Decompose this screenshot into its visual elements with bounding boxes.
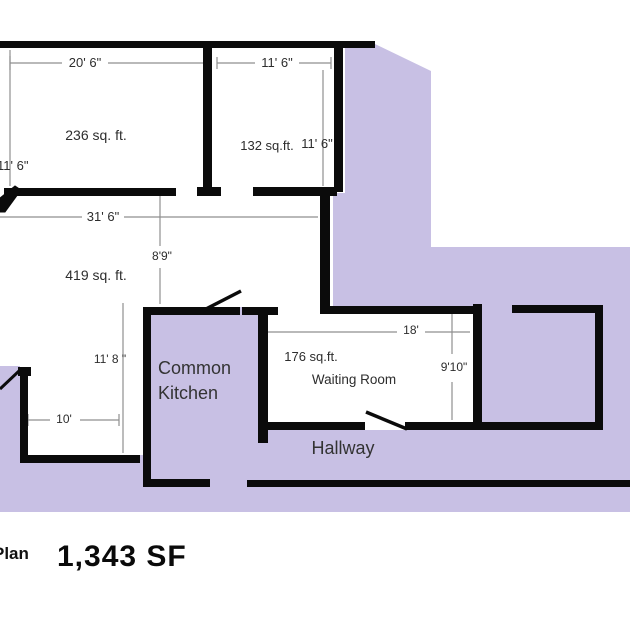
wall-top: [0, 41, 375, 48]
wall-kitchen-left: [143, 307, 151, 487]
waiting-room-label: Waiting Room: [312, 373, 396, 388]
wall-right-room-right: [595, 305, 603, 430]
floor-plan-drawing: [0, 0, 630, 630]
room-419-area-label: 419 sq. ft.: [65, 268, 126, 283]
door-swing-top-left: [0, 186, 21, 212]
wall-waiting-top: [328, 306, 482, 314]
dimension-label-20-6: 20' 6": [69, 56, 101, 70]
dimension-label-10: 10': [56, 413, 72, 426]
dimension-line-10: [28, 414, 119, 426]
wall-descending: [320, 193, 330, 314]
hallway-label: Hallway: [311, 439, 374, 459]
waiting-room-area-label: 176 sq.ft.: [284, 350, 337, 364]
dimension-label-31-6: 31' 6": [87, 210, 119, 224]
dimension-label-11-8: 11' 8 ": [94, 353, 126, 366]
wall-left-room-bottom: [20, 455, 140, 463]
wall-hallway-bottom: [247, 480, 630, 487]
kitchen-label-line2: Kitchen: [158, 381, 231, 406]
dimension-label-11-6-left: 11' 6": [0, 159, 28, 173]
room-132-area-label: 132 sq.ft.: [240, 139, 293, 153]
dimension-label-11-6-right: 11' 6": [301, 137, 332, 151]
wall-mid-left: [4, 188, 176, 196]
total-area-value: 1,343 SF: [57, 540, 187, 573]
wall-waiting-bottom-left: [258, 422, 365, 430]
dimension-label-11-6-top: 11' 6": [261, 56, 292, 70]
highlight-bottom-left-band: [20, 455, 143, 512]
dimension-label-18: 18': [403, 324, 419, 337]
floor-plan: 20' 6" 11' 6" 11' 6" 11' 6" 31' 6" 8'9" …: [0, 0, 630, 630]
wall-divider-foot: [197, 187, 221, 196]
wall-room-divider-top: [203, 45, 212, 191]
highlight-top-right-strip: [333, 44, 431, 250]
wall-t-bar: [242, 307, 278, 315]
dimension-label-8-9: 8'9": [152, 250, 172, 263]
room-236-area-label: 236 sq. ft.: [65, 128, 126, 143]
highlight-upper-band: [333, 247, 630, 314]
wall-right-room-top: [512, 305, 603, 313]
kitchen-label-line1: Common: [158, 356, 231, 381]
dimension-line-20-6: [10, 56, 203, 70]
wall-kitchen-bottom: [143, 479, 210, 487]
wall-bottom-right: [405, 422, 603, 430]
kitchen-label: Common Kitchen: [158, 356, 231, 406]
wall-waiting-right: [473, 304, 482, 430]
wall-room132-right: [334, 45, 343, 192]
dimension-label-9-10: 9'10": [441, 361, 468, 374]
wall-left-room-left: [20, 368, 28, 463]
wall-kitchen-top: [143, 307, 240, 315]
plan-label: Plan: [0, 545, 29, 564]
door-swing-waiting: [366, 412, 407, 429]
